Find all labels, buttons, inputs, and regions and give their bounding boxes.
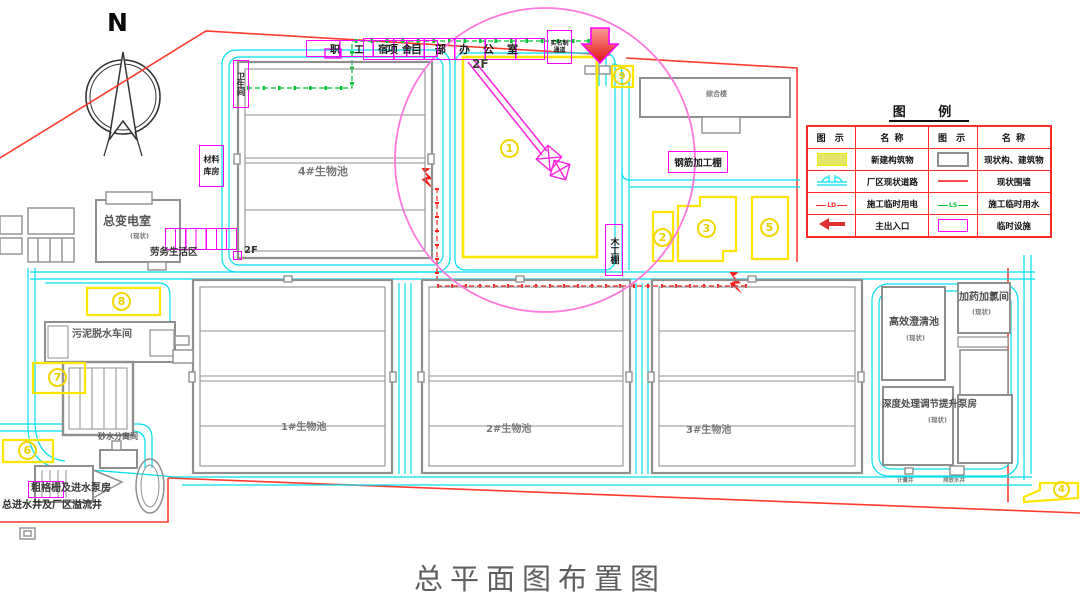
- legend-name: 新建构筑物: [856, 149, 929, 171]
- marker-5: 5: [760, 218, 779, 237]
- label-main-substation: 总变电室: [103, 215, 151, 228]
- label-labor-floor: 2F: [244, 246, 258, 257]
- legend-title: 图 例: [806, 101, 1052, 120]
- marker-6: 6: [18, 441, 37, 460]
- note-deep-treatment: (现状): [928, 414, 947, 424]
- note-main-substation: (现状): [130, 230, 149, 240]
- label-sludge-dewatering: 污泥脱水车间: [72, 330, 132, 341]
- legend-name: 现状构、建筑物: [977, 149, 1051, 171]
- temp-box-rebar-shed: 钢筋加工棚: [668, 151, 728, 173]
- marker-3: 3: [697, 219, 716, 238]
- tower-crane-base: [536, 145, 569, 179]
- legend-header: 图 示: [807, 126, 856, 149]
- note-dosing-room: (现状): [972, 306, 991, 316]
- legend-name: 施工临时用电: [856, 193, 929, 215]
- label-bio-pool-1: 1#生物池: [281, 423, 326, 434]
- legend-table: 图 示 名 称 图 示 名 称 新建构筑物 现状构、建筑物 厂区现状道路 现状围…: [806, 125, 1052, 238]
- marker-1: 1: [500, 139, 519, 158]
- marker-4: 4: [1053, 481, 1070, 498]
- label-deep-treatment-pump: 深度处理调节提升泵房: [882, 400, 977, 410]
- label-coarse-screen-pump: 粗格栅及进水泵房: [31, 484, 111, 495]
- label-admin-building: 综合楼: [706, 89, 727, 99]
- north-compass-icon: [86, 52, 160, 156]
- label-main-inlet-well: 总进水井及厂区溢流井: [2, 501, 102, 512]
- legend-row: 厂区现状道路 现状围墙: [807, 171, 1051, 193]
- legend-header: 名 称: [856, 126, 929, 149]
- marker-2: 2: [653, 228, 672, 247]
- label-meter-well: 计量井: [897, 476, 914, 484]
- temp-box-carpentry-shed: 木工棚: [605, 224, 623, 276]
- temp-box-labor-small: [233, 251, 242, 260]
- legend-name: 现状围墙: [977, 171, 1051, 193]
- temp-facility-swatch: [938, 219, 968, 232]
- main-entrance-symbol: [817, 218, 847, 230]
- temp-water-symbol: LS: [938, 202, 968, 209]
- label-bio-pool-4: 4#生物池: [298, 166, 348, 178]
- label-labor-living-area: 劳务生活区: [150, 248, 198, 258]
- existing-road-symbol: [816, 173, 848, 187]
- temp-box-material-warehouse: 材料库房: [199, 145, 224, 187]
- temp-box-realname-channel: 实名制通道: [547, 30, 572, 64]
- marker-7: 7: [48, 368, 67, 387]
- drawing-title: 总平面图布置图: [0, 556, 1080, 598]
- site-plan-linework: [0, 0, 1080, 607]
- legend-row: 新建构筑物 现状构、建筑物: [807, 149, 1051, 171]
- label-bio-pool-2: 2#生物池: [486, 425, 531, 436]
- label-clarifier: 高效澄清池: [889, 318, 939, 329]
- label-bio-pool-3: 3#生物池: [686, 426, 731, 437]
- temp-power-symbol: LD: [816, 202, 847, 209]
- temp-box-staff-dormitory: 职工宿舍: [306, 40, 438, 57]
- legend-name: 厂区现状道路: [856, 171, 929, 193]
- existing-structure-swatch: [937, 152, 969, 167]
- legend-row: 主出入口 临时设施: [807, 215, 1051, 238]
- legend: 图 例 图 示 名 称 图 示 名 称 新建构筑物 现状构、建筑物 厂区现状道路…: [806, 101, 1052, 238]
- label-dosing-room: 加药加氯间: [959, 293, 1009, 304]
- legend-name: 临时设施: [977, 215, 1051, 238]
- existing-wall-symbol: [938, 180, 968, 182]
- legend-header: 图 示: [929, 126, 977, 149]
- north-label: N: [107, 8, 128, 37]
- marker-9: 9: [613, 67, 631, 85]
- temp-box-toilet: 卫生间: [233, 60, 249, 108]
- legend-header: 名 称: [977, 126, 1051, 149]
- note-clarifier: (现状): [906, 332, 925, 342]
- legend-name: 施工临时用水: [977, 193, 1051, 215]
- site-plan-canvas: N 4#生物池 1#生物池 2#生物池 3#生物池 总变电室 (现状) 污泥脱水…: [0, 0, 1080, 607]
- new-structure-swatch: [817, 153, 847, 166]
- marker-8: 8: [112, 292, 131, 311]
- legend-row: LD 施工临时用电 LS 施工临时用水: [807, 193, 1051, 215]
- legend-name: 主出入口: [856, 215, 929, 238]
- label-sand-water-separation: 砂水分离间: [98, 433, 138, 441]
- label-discharge-well: 排放水井: [943, 476, 965, 484]
- label-floor-2f-center: 2F: [472, 58, 489, 71]
